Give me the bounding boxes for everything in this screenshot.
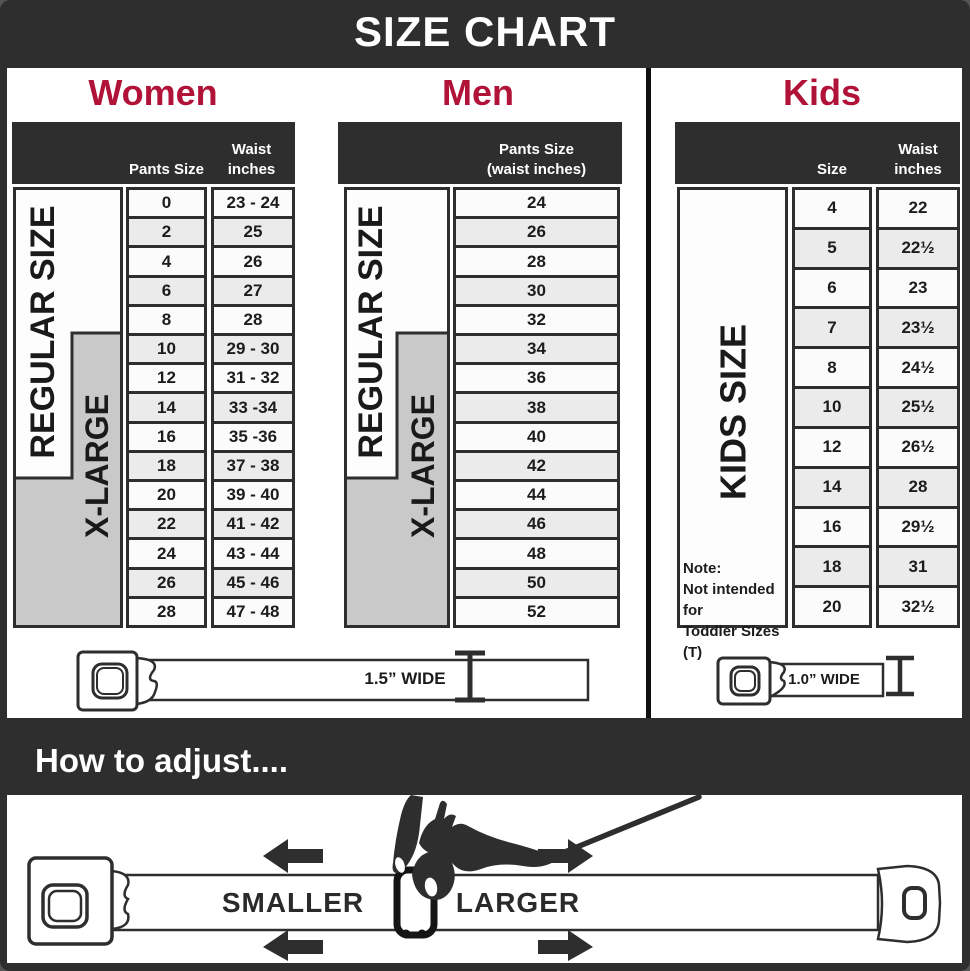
kids-size-label: KIDS SIZE <box>713 324 754 500</box>
waist-cell: 32½ <box>879 585 957 625</box>
size-cell: 38 <box>456 391 617 420</box>
size-chart-page: SIZE CHART Women Men Kids Pants Size Wai… <box>0 0 970 971</box>
size-cell: 5 <box>795 227 869 267</box>
size-cell: 32 <box>456 304 617 333</box>
size-cell: 12 <box>129 362 204 391</box>
size-cell: 6 <box>129 275 204 304</box>
adjust-buckle-slot-inner <box>49 891 81 921</box>
waist-cell: 29 - 30 <box>214 333 292 362</box>
waist-cell: 28 <box>879 466 957 506</box>
men-regular-size-label: REGULAR SIZE <box>352 205 390 458</box>
size-cell: 12 <box>795 426 869 466</box>
kids-note-line2: Not intended for <box>683 581 775 619</box>
waist-cell: 27 <box>214 275 292 304</box>
kids-note: Note: Not intended for Toddler Sizes (T) <box>683 558 788 663</box>
belt-width-10-label: 1.0” WIDE <box>774 671 874 688</box>
size-cell: 4 <box>795 190 869 227</box>
men-heading: Men <box>336 72 620 114</box>
size-cell: 34 <box>456 333 617 362</box>
size-cell: 10 <box>795 386 869 426</box>
men-xlarge-label: X-LARGE <box>405 394 441 538</box>
women-col-waist-header: Waist inches <box>204 140 299 180</box>
waist-cell: 31 <box>879 545 957 585</box>
women-waist-header-line2: inches <box>228 161 276 178</box>
size-cell: 50 <box>456 567 617 596</box>
slider-foot-right <box>418 930 427 939</box>
size-cell: 6 <box>795 267 869 307</box>
size-cell: 52 <box>456 596 617 625</box>
women-pants-size-column: 0246810121416182022242628 <box>126 187 207 628</box>
kids-note-line3: Toddler Sizes (T) <box>683 623 779 661</box>
belt-width-15-label: 1.5” WIDE <box>345 669 465 689</box>
women-waist-header-line1: Waist <box>232 141 271 158</box>
how-to-adjust-heading: How to adjust.... <box>35 742 288 780</box>
kids-size-column: 45678101214161820 <box>792 187 872 628</box>
kids-col-waist-header: Waist inches <box>876 140 960 180</box>
waist-cell: 45 - 46 <box>214 567 292 596</box>
size-cell: 28 <box>129 596 204 625</box>
size-cell: 8 <box>795 346 869 386</box>
size-cell: 8 <box>129 304 204 333</box>
waist-cell: 26½ <box>879 426 957 466</box>
section-divider <box>646 68 651 718</box>
waist-cell: 43 - 44 <box>214 537 292 566</box>
waist-cell: 35 -36 <box>214 421 292 450</box>
size-cell: 14 <box>129 391 204 420</box>
size-cell: 24 <box>456 190 617 216</box>
width-measure-10-icon <box>886 658 914 694</box>
waist-cell: 47 - 48 <box>214 596 292 625</box>
size-cell: 28 <box>456 245 617 274</box>
men-header-line2: (waist inches) <box>487 161 586 178</box>
waist-cell: 37 - 38 <box>214 450 292 479</box>
waist-cell: 31 - 32 <box>214 362 292 391</box>
waist-cell: 25½ <box>879 386 957 426</box>
men-header-line1: Pants Size <box>499 141 574 158</box>
women-col-pants-header: Pants Size <box>119 160 214 180</box>
women-xlarge-label: X-LARGE <box>79 394 115 538</box>
waist-cell: 39 - 40 <box>214 479 292 508</box>
adjust-illustration-panel: SMALLER LARGER <box>7 795 962 963</box>
waist-cell: 23½ <box>879 306 957 346</box>
women-size-range-graphic: REGULAR SIZE X-LARGE <box>12 187 127 628</box>
kids-col-size-header: Size <box>792 160 872 180</box>
size-cell: 10 <box>129 333 204 362</box>
size-cell: 18 <box>129 450 204 479</box>
size-tables-panel: Women Men Kids Pants Size Waist inches P… <box>7 68 962 718</box>
size-cell: 36 <box>456 362 617 391</box>
belt-buckle-15-slot-inner <box>97 668 123 694</box>
kids-waist-header-line1: Waist <box>898 141 937 158</box>
waist-cell: 22½ <box>879 227 957 267</box>
men-size-range-graphic: REGULAR SIZE X-LARGE <box>338 187 458 628</box>
size-cell: 4 <box>129 245 204 274</box>
size-cell: 26 <box>129 567 204 596</box>
men-col-header: Pants Size (waist inches) <box>453 140 620 180</box>
adjust-buckle-latch-icon <box>112 871 128 929</box>
size-cell: 26 <box>456 216 617 245</box>
size-cell: 20 <box>129 479 204 508</box>
men-pants-size-column: 242628303234363840424446485052 <box>453 187 620 628</box>
page-title: SIZE CHART <box>0 8 970 56</box>
women-heading: Women <box>11 72 295 114</box>
size-cell: 18 <box>795 545 869 585</box>
arrow-right-bottom-icon <box>538 930 593 961</box>
waist-cell: 24½ <box>879 346 957 386</box>
women-regular-size-label: REGULAR SIZE <box>24 205 62 458</box>
waist-cell: 33 -34 <box>214 391 292 420</box>
size-cell: 24 <box>129 537 204 566</box>
smaller-label: SMALLER <box>213 887 373 919</box>
size-cell: 14 <box>795 466 869 506</box>
arrow-left-bottom-icon <box>263 930 323 961</box>
kids-waist-column: 2222½2323½24½25½26½2829½3132½ <box>876 187 960 628</box>
size-cell: 42 <box>456 450 617 479</box>
waist-cell: 22 <box>879 190 957 227</box>
size-cell: 16 <box>795 506 869 546</box>
size-cell: 2 <box>129 216 204 245</box>
waist-cell: 28 <box>214 304 292 333</box>
belt-tip-hole <box>904 888 925 918</box>
size-cell: 30 <box>456 275 617 304</box>
size-cell: 16 <box>129 421 204 450</box>
arrow-left-top-icon <box>263 839 323 873</box>
size-cell: 22 <box>129 508 204 537</box>
size-cell: 0 <box>129 190 204 216</box>
waist-cell: 29½ <box>879 506 957 546</box>
waist-cell: 23 <box>879 267 957 307</box>
size-cell: 46 <box>456 508 617 537</box>
size-cell: 40 <box>456 421 617 450</box>
waist-cell: 41 - 42 <box>214 508 292 537</box>
women-waist-column: 23 - 242526272829 - 3031 - 3233 -3435 -3… <box>211 187 295 628</box>
belt-buckle-10-slot-inner <box>735 671 755 691</box>
kids-heading: Kids <box>680 72 964 114</box>
waist-cell: 25 <box>214 216 292 245</box>
waist-cell: 23 - 24 <box>214 190 292 216</box>
adjust-belt-illustration <box>7 795 962 963</box>
slider-foot-left <box>402 930 411 939</box>
size-cell: 20 <box>795 585 869 625</box>
size-cell: 44 <box>456 479 617 508</box>
kids-waist-header-line2: inches <box>894 161 942 178</box>
size-cell: 7 <box>795 306 869 346</box>
kids-note-line1: Note: <box>683 560 721 577</box>
larger-label: LARGER <box>438 887 598 919</box>
waist-cell: 26 <box>214 245 292 274</box>
size-cell: 48 <box>456 537 617 566</box>
